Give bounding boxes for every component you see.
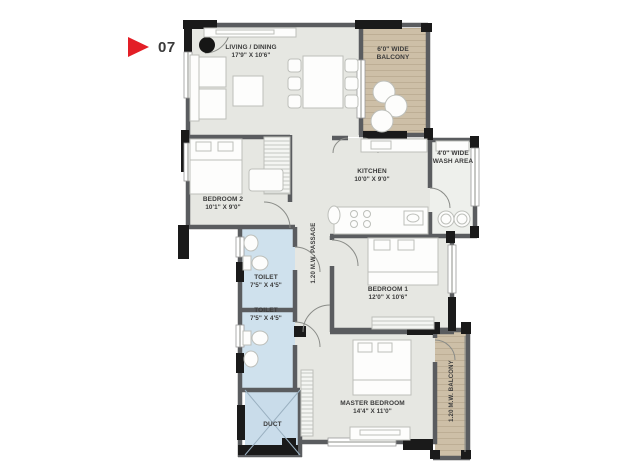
- room-master-bedroom: [300, 332, 435, 442]
- label-bedroom2: BEDROOM 2 10'1" X 9'0": [191, 196, 255, 212]
- room-name: TOILET: [240, 274, 292, 282]
- unit-number: 07: [158, 39, 176, 56]
- room-dims: 12'0" X 10'6": [353, 294, 423, 302]
- room-dims: 7'5" X 4'5": [240, 282, 292, 290]
- room-dims: 7'5" X 4'5": [240, 315, 292, 323]
- room-name: WASH AREA: [428, 158, 478, 166]
- room-dims: 14'4" X 11'0": [325, 408, 420, 416]
- room-kitchen: [332, 138, 430, 236]
- room-name: 4'0" WIDE: [428, 150, 478, 158]
- room-name: 6'0" WIDE: [363, 46, 423, 54]
- label-balcony-right: 1.20 M.W. BALCONY: [449, 351, 455, 431]
- floorplan-canvas: 07: [0, 0, 626, 470]
- label-duct: DUCT: [250, 421, 295, 429]
- label-passage: 1.20 M.W. PASSAGE: [311, 217, 317, 289]
- unit-marker: 07: [128, 37, 176, 57]
- room-name: BALCONY: [363, 54, 423, 62]
- room-name: BEDROOM 1: [353, 286, 423, 294]
- room-dims: 17'9" X 10'6": [205, 52, 297, 60]
- label-toilet1: TOILET 7'5" X 4'5": [240, 274, 292, 290]
- label-living-dining: LIVING / DINING 17'9" X 10'6": [205, 44, 297, 60]
- room-bedroom1: [332, 236, 452, 330]
- room-name: TOILET: [240, 307, 292, 315]
- room-name: BEDROOM 2: [191, 196, 255, 204]
- label-toilet2: TOILET 7'5" X 4'5": [240, 307, 292, 323]
- room-dims: 10'1" X 9'0": [191, 204, 255, 212]
- room-toilet1: [240, 227, 295, 310]
- room-name: MASTER BEDROOM: [325, 400, 420, 408]
- red-arrow-icon: [128, 37, 149, 57]
- room-bedroom2: [188, 137, 290, 227]
- label-kitchen: KITCHEN 10'0" X 9'0": [337, 168, 407, 184]
- room-name: KITCHEN: [337, 168, 407, 176]
- label-bedroom1: BEDROOM 1 12'0" X 10'6": [353, 286, 423, 302]
- room-living-dining: [188, 25, 361, 137]
- label-balcony-top: 6'0" WIDE BALCONY: [363, 46, 423, 62]
- room-name: DUCT: [250, 421, 295, 429]
- room-balcony-top: [361, 28, 428, 135]
- label-master-bedroom: MASTER BEDROOM 14'4" X 11'0": [325, 400, 420, 416]
- label-wash-area: 4'0" WIDE WASH AREA: [428, 150, 478, 166]
- room-name: LIVING / DINING: [205, 44, 297, 52]
- room-dims: 10'0" X 9'0": [337, 176, 407, 184]
